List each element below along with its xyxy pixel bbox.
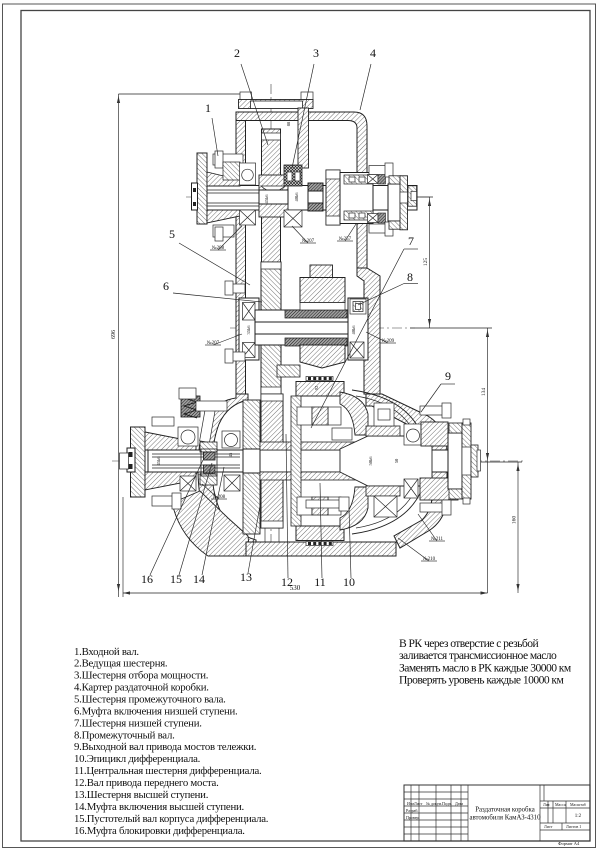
svg-text:696: 696 <box>111 330 117 339</box>
svg-text:3.Шестерня отбора мощности.: 3.Шестерня отбора мощности. <box>74 670 208 682</box>
svg-text:40k6: 40k6 <box>351 325 356 335</box>
svg-text:Заменять масло в РК каждые 300: Заменять масло в РК каждые 30000 км <box>399 661 572 674</box>
svg-text:автомобиля КамАЗ-4310: автомобиля КамАЗ-4310 <box>470 815 542 822</box>
svg-text:13.Шестерня высшей ступени.: 13.Шестерня высшей ступени. <box>74 789 208 801</box>
svg-text:45k6: 45k6 <box>264 194 269 204</box>
svg-text:45: 45 <box>228 452 233 457</box>
svg-text:160: 160 <box>512 516 518 525</box>
svg-text:88: 88 <box>286 121 291 126</box>
svg-text:Листов 1: Листов 1 <box>566 824 581 829</box>
svg-text:3: 3 <box>313 46 319 60</box>
svg-text:125: 125 <box>423 258 429 267</box>
svg-text:7.Шестерня низшей ступени.: 7.Шестерня низшей ступени. <box>74 717 202 729</box>
svg-text:Лит.: Лит. <box>543 802 550 807</box>
svg-text:Лист: Лист <box>544 824 553 829</box>
svg-text:1.Входной вал.: 1.Входной вал. <box>74 646 139 658</box>
svg-text:5: 5 <box>169 227 175 241</box>
svg-text:заливается трансмиссионное мас: заливается трансмиссионное масло <box>399 649 557 662</box>
svg-text:Масса: Масса <box>555 802 566 807</box>
svg-text:Проверять уровень каждые 10000: Проверять уровень каждые 10000 км <box>399 674 564 687</box>
svg-text:№ докум.: № докум. <box>426 801 442 806</box>
svg-text:12: 12 <box>281 575 293 589</box>
svg-text:1: 1 <box>205 101 211 115</box>
svg-text:Дата: Дата <box>455 801 463 806</box>
svg-text:4.Картер раздаточной коробки.: 4.Картер раздаточной коробки. <box>74 682 209 694</box>
svg-text:Подп.: Подп. <box>442 801 452 806</box>
svg-text:1:2: 1:2 <box>575 814 582 819</box>
svg-text:9: 9 <box>445 369 451 383</box>
svg-text:40k6: 40k6 <box>294 192 299 202</box>
svg-text:11.Центральная шестерня диффер: 11.Центральная шестерня дифференциала. <box>74 765 261 777</box>
svg-text:Масштаб: Масштаб <box>570 802 586 807</box>
svg-text:2: 2 <box>234 46 240 60</box>
svg-text:6.Муфта включения низшей ступе: 6.Муфта включения низшей ступени. <box>74 705 237 717</box>
svg-text:5.Шестерня промежуточного вала: 5.Шестерня промежуточного вала. <box>74 694 226 706</box>
svg-text:14.Муфта включения высшей ступ: 14.Муфта включения высшей ступени. <box>74 801 244 813</box>
svg-text:13: 13 <box>240 570 252 584</box>
svg-text:Провер.: Провер. <box>406 815 420 820</box>
svg-text:92: 92 <box>314 386 319 391</box>
svg-text:50: 50 <box>394 458 399 463</box>
svg-text:8.Промежуточный вал.: 8.Промежуточный вал. <box>74 729 175 741</box>
svg-text:45k6: 45k6 <box>156 456 161 466</box>
svg-text:35k6: 35k6 <box>246 325 251 335</box>
svg-text:Лист: Лист <box>414 801 423 806</box>
svg-text:2.Ведущая шестерня.: 2.Ведущая шестерня. <box>74 658 167 670</box>
svg-text:Разраб.: Разраб. <box>406 808 418 813</box>
svg-text:14: 14 <box>193 572 205 586</box>
svg-text:50k6: 50k6 <box>368 456 373 466</box>
svg-text:10: 10 <box>343 575 355 589</box>
svg-text:15: 15 <box>170 572 182 586</box>
svg-text:12.Вал привода переднего моста: 12.Вал привода переднего моста. <box>74 777 219 789</box>
svg-text:10.Эпицикл дифференциала.: 10.Эпицикл дифференциала. <box>74 753 200 765</box>
svg-text:9.Выходной вал привода мостов: 9.Выходной вал привода мостов тележки. <box>74 741 256 753</box>
svg-text:7: 7 <box>408 234 414 248</box>
svg-text:16.Муфта блокировки дифференци: 16.Муфта блокировки дифференциала. <box>74 825 245 837</box>
svg-text:6: 6 <box>163 279 169 293</box>
svg-text:16: 16 <box>141 572 153 586</box>
svg-text:134: 134 <box>481 388 487 397</box>
svg-text:Раздаточная коробка: Раздаточная коробка <box>475 807 535 814</box>
svg-text:15.Пустотелый вал корпуса дифф: 15.Пустотелый вал корпуса дифференциала. <box>74 813 268 825</box>
svg-text:4: 4 <box>370 46 376 60</box>
svg-text:Формат А4: Формат А4 <box>558 841 580 846</box>
svg-text:В РК через отверстие с резьбой: В РК через отверстие с резьбой <box>399 637 539 650</box>
svg-text:11: 11 <box>314 575 326 589</box>
svg-text:8: 8 <box>407 270 413 284</box>
